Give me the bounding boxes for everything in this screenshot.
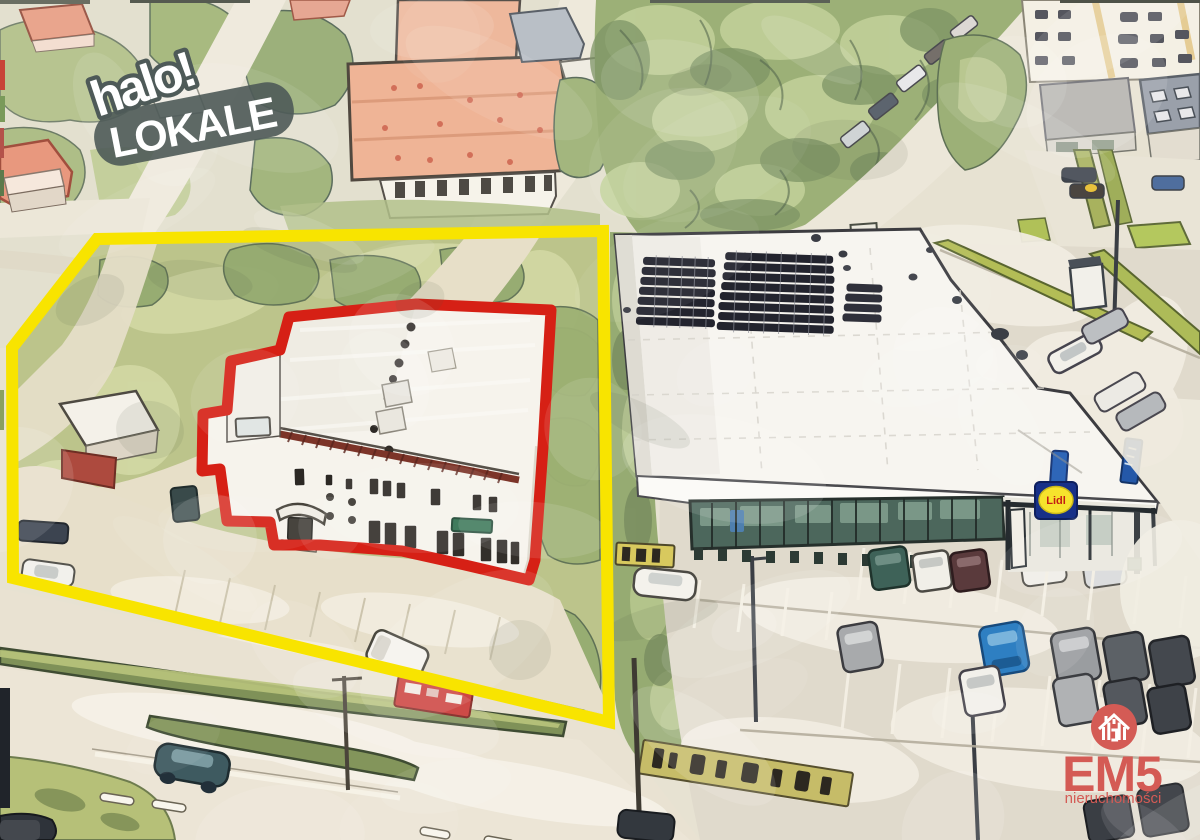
svg-text:nieruchomości: nieruchomości (1065, 790, 1162, 807)
svg-text:Lidl: Lidl (1046, 495, 1066, 507)
